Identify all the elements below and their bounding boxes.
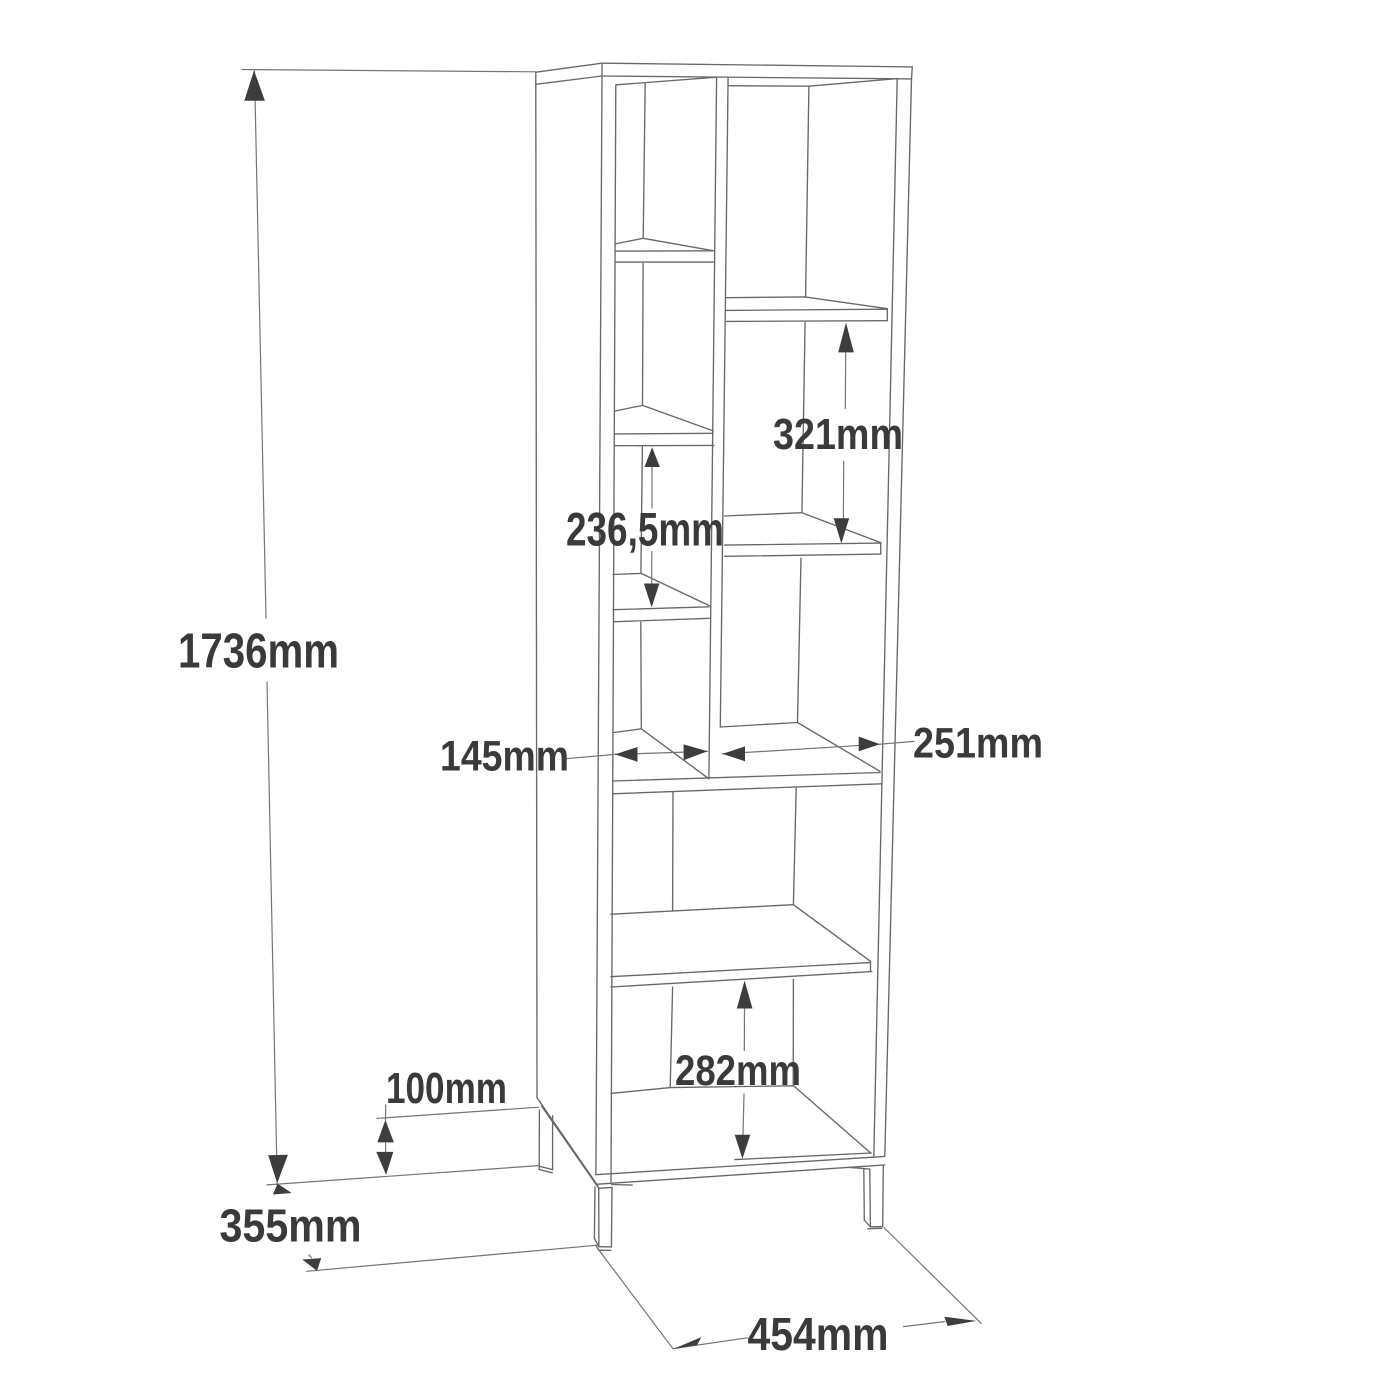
svg-text:321mm: 321mm bbox=[773, 410, 903, 459]
svg-text:236,5mm: 236,5mm bbox=[566, 503, 724, 556]
svg-text:454mm: 454mm bbox=[748, 1308, 889, 1360]
svg-text:100mm: 100mm bbox=[386, 1064, 507, 1113]
svg-text:145mm: 145mm bbox=[440, 733, 569, 781]
svg-text:355mm: 355mm bbox=[220, 1200, 362, 1252]
svg-text:1736mm: 1736mm bbox=[178, 625, 339, 679]
svg-text:251mm: 251mm bbox=[913, 720, 1043, 768]
svg-text:282mm: 282mm bbox=[675, 1047, 801, 1095]
